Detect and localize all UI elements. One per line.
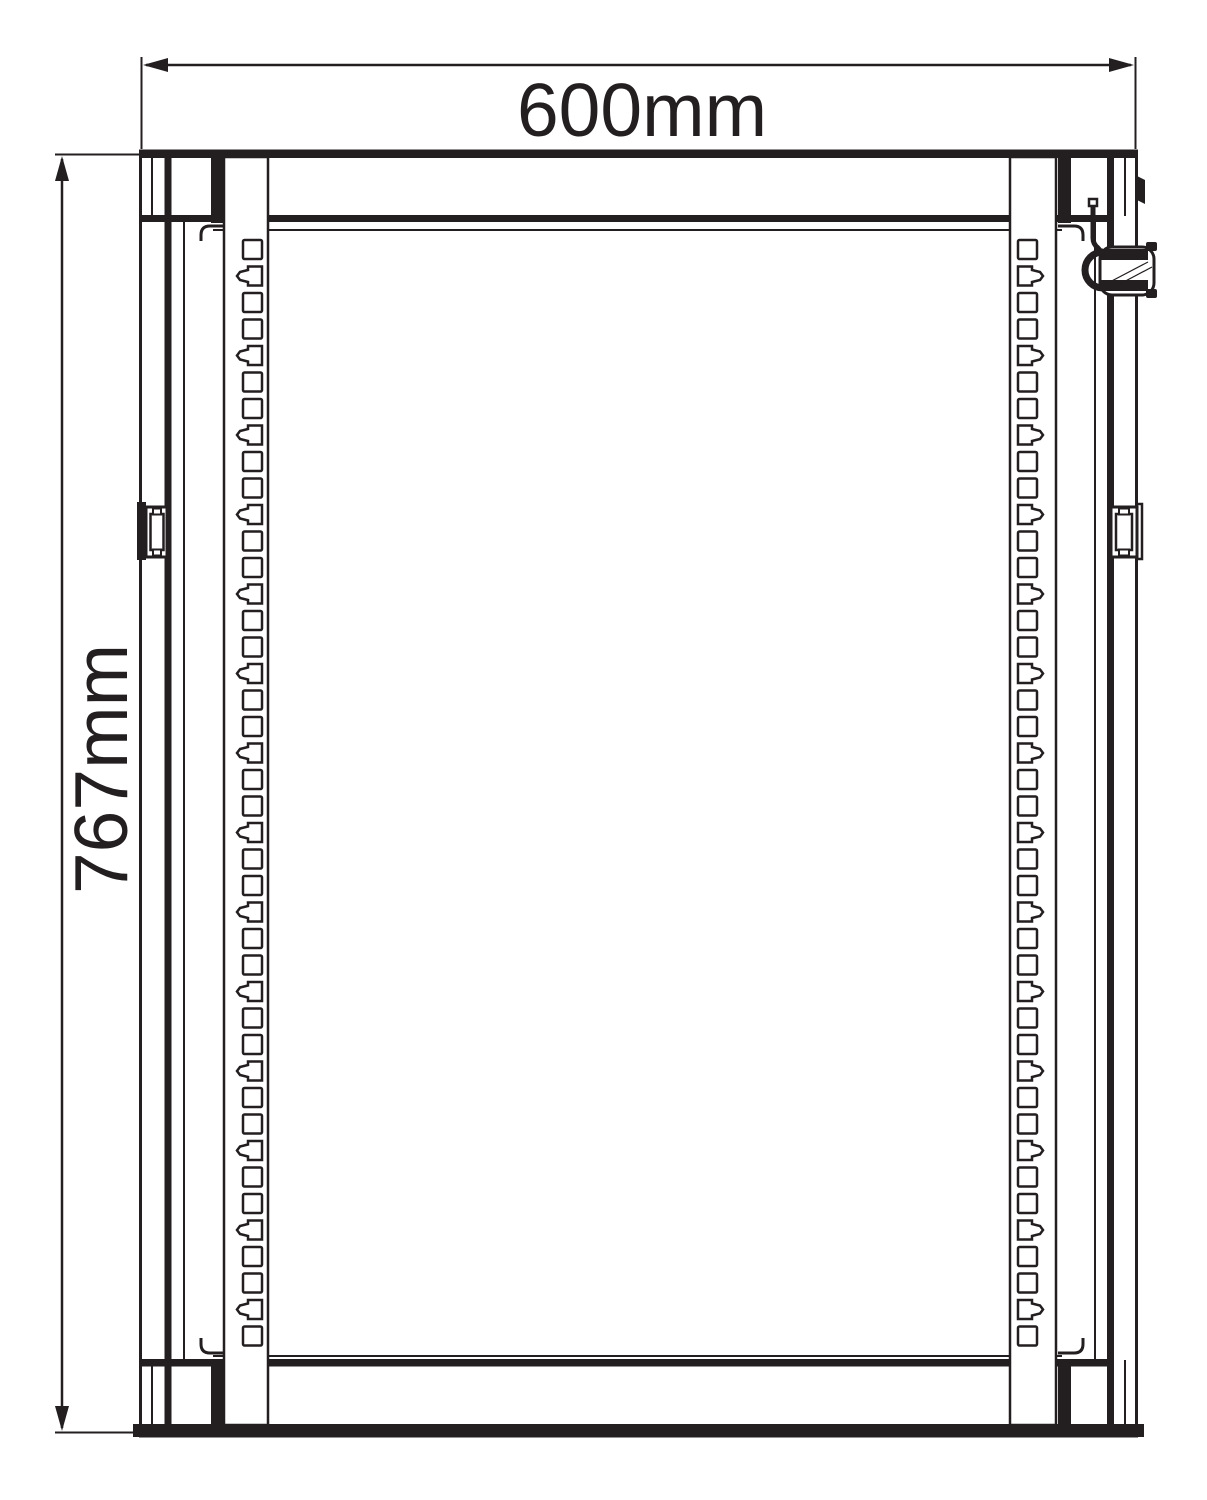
arrow-right-icon — [1109, 58, 1134, 72]
rail-hole — [1018, 929, 1037, 948]
lock-top-bar — [1101, 249, 1148, 260]
rail-hole — [1018, 1274, 1037, 1293]
rail-hole — [243, 479, 262, 498]
rail-hole — [243, 1009, 262, 1028]
rail-hole — [1018, 558, 1037, 577]
rail-hole — [243, 452, 262, 471]
right-door-frame-edge — [1107, 157, 1114, 1425]
rail-hole — [1018, 691, 1037, 710]
rail-hole — [1018, 452, 1037, 471]
rail-hole — [1018, 850, 1037, 869]
rail-hole — [1018, 1168, 1037, 1187]
rail-hole — [1018, 1035, 1037, 1054]
left-mounting-rail — [224, 157, 268, 1425]
rail-hole — [1018, 320, 1037, 339]
left-hinge-tab-bottom — [153, 550, 161, 556]
rail-hole — [243, 611, 262, 630]
bottom-base-strip — [133, 1424, 1144, 1437]
rail-hole — [1018, 240, 1037, 259]
rail-hole — [243, 717, 262, 736]
rail-hole — [243, 876, 262, 895]
width-dimension-label: 600mm — [517, 68, 767, 152]
rail-hole — [243, 770, 262, 789]
lock-ear-top — [1146, 242, 1157, 251]
rail-hole — [1018, 293, 1037, 312]
rail-hole — [1018, 1327, 1037, 1346]
rail-hole — [243, 956, 262, 975]
height-dimension-label: 767mm — [59, 644, 143, 894]
bottom-inner-rail-line — [140, 1359, 1108, 1367]
rail-hole — [243, 797, 262, 816]
rail-hole — [1018, 797, 1037, 816]
rail-hole — [1018, 1115, 1037, 1134]
rail-hole — [1018, 479, 1037, 498]
rail-hole — [243, 240, 262, 259]
rail-hole — [1018, 876, 1037, 895]
rail-hole — [243, 320, 262, 339]
height-dimension: 767mm — [55, 155, 143, 1433]
arrow-down-icon — [55, 1406, 69, 1431]
top-right-post — [1058, 157, 1071, 223]
lock-rod-head — [1089, 199, 1097, 206]
right-edge-step — [1137, 176, 1145, 204]
rail-hole — [1018, 532, 1037, 551]
arrow-left-icon — [143, 58, 168, 72]
cabinet-frame — [140, 151, 1145, 1436]
rail-hole — [243, 558, 262, 577]
top-left-post — [211, 157, 224, 223]
bottom-left-post — [211, 1359, 224, 1426]
rail-hole — [1018, 770, 1037, 789]
rail-hole — [243, 1168, 262, 1187]
rail-hole — [243, 638, 262, 657]
rail-hole — [243, 850, 262, 869]
rail-hole — [243, 1088, 262, 1107]
top-cap-strip — [139, 150, 1138, 158]
rail-hole — [243, 1327, 262, 1346]
rail-hole — [1018, 1247, 1037, 1266]
right-mounting-rail — [1010, 157, 1056, 1425]
top-inner-rail-line — [140, 215, 1108, 222]
left-hinge-tab-top — [153, 509, 161, 515]
rail-hole — [243, 399, 262, 418]
rail-hole — [1018, 611, 1037, 630]
right-hinge-tab-bottom — [1119, 550, 1129, 556]
rail-hole — [243, 1115, 262, 1134]
rail-hole — [243, 293, 262, 312]
rail-hole — [243, 1247, 262, 1266]
left-door-hinge — [137, 502, 167, 560]
rail-hole — [243, 1035, 262, 1054]
rail-hole — [1018, 717, 1037, 736]
rail-hole — [243, 1194, 262, 1213]
rail-hole — [1018, 1009, 1037, 1028]
diagram-canvas: 600mm 767mm — [0, 0, 1207, 1500]
rail-hole — [1018, 373, 1037, 392]
rail-hole — [243, 929, 262, 948]
bottom-right-post — [1058, 1359, 1071, 1426]
lock-ear-bottom — [1146, 289, 1157, 298]
rail-hole — [243, 532, 262, 551]
rail-hole — [1018, 399, 1037, 418]
right-hinge-tab-top — [1119, 509, 1129, 515]
width-dimension: 600mm — [142, 57, 1136, 152]
rail-hole — [243, 691, 262, 710]
rack-cabinet-diagram: 600mm 767mm — [0, 0, 1207, 1500]
left-door-frame-edge — [165, 157, 172, 1425]
rail-hole — [1018, 1194, 1037, 1213]
rail-hole — [243, 1274, 262, 1293]
arrow-up-icon — [55, 156, 69, 181]
right-door-hinge — [1111, 504, 1142, 559]
rail-hole — [243, 373, 262, 392]
right-hinge-pin — [1116, 514, 1132, 550]
cabinet-outline — [141, 151, 1137, 1436]
rail-hole — [1018, 1088, 1037, 1107]
rail-hole — [1018, 956, 1037, 975]
left-hinge-pin — [151, 514, 164, 550]
rail-hole — [1018, 638, 1037, 657]
